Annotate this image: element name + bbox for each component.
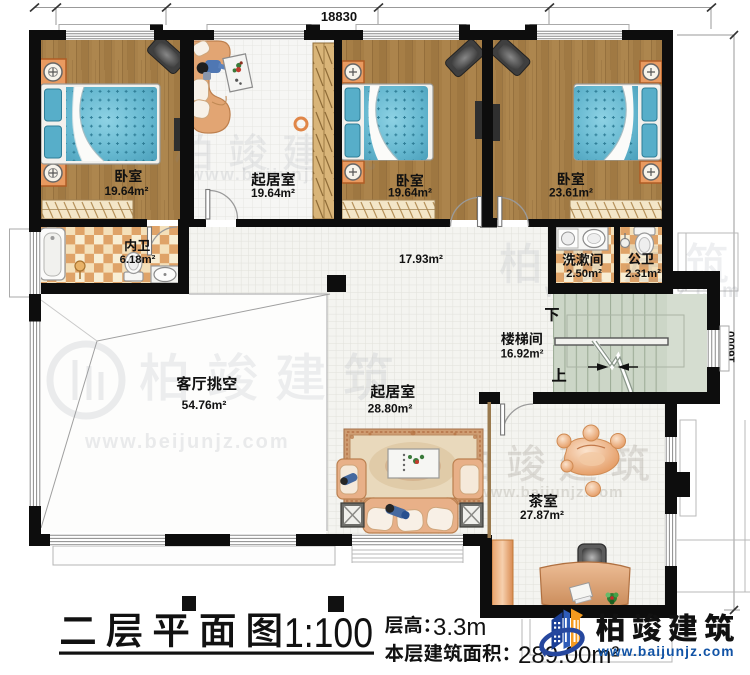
svg-text:19.64m²: 19.64m² xyxy=(388,186,432,200)
svg-text:www.beijunjz.com: www.beijunjz.com xyxy=(84,431,290,453)
svg-text:1:100: 1:100 xyxy=(284,609,373,656)
svg-text:2.31m²: 2.31m² xyxy=(625,268,661,280)
svg-text:16.92m²: 16.92m² xyxy=(501,349,544,361)
svg-text:27.87m²: 27.87m² xyxy=(520,508,564,522)
svg-text:2.50m²: 2.50m² xyxy=(566,268,602,280)
svg-text:19.64m²: 19.64m² xyxy=(251,186,295,200)
svg-text:www.baijunjz.com: www.baijunjz.com xyxy=(597,644,735,659)
svg-text:28.80m²: 28.80m² xyxy=(368,402,413,416)
svg-text:19.64m²: 19.64m² xyxy=(105,184,149,198)
svg-text:17.93m²: 17.93m² xyxy=(399,252,443,266)
svg-text:23.61m²: 23.61m² xyxy=(549,186,593,200)
svg-text:54.76m²: 54.76m² xyxy=(182,398,227,412)
svg-text:18830: 18830 xyxy=(321,9,357,24)
svg-text:6.18m²: 6.18m² xyxy=(120,254,156,266)
svg-text:3.3m: 3.3m xyxy=(433,614,486,641)
